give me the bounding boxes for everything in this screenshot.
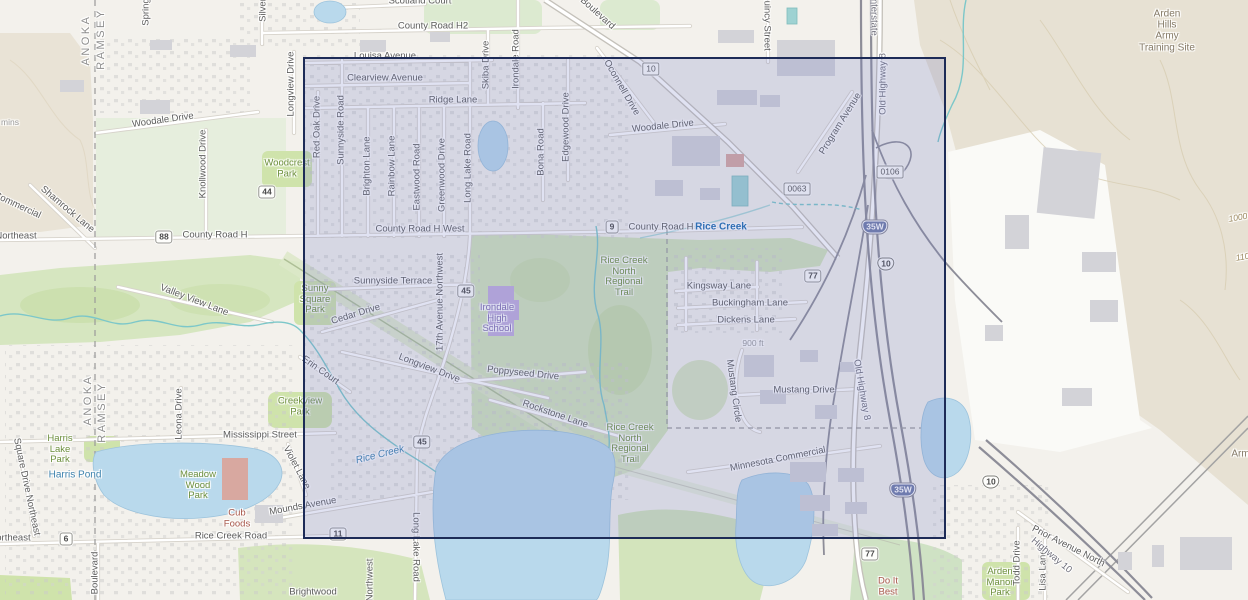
map-label-northeast: Northeast <box>0 534 31 545</box>
map-label-county-road-h2: County Road H2 <box>398 22 468 33</box>
map-label-commercial: Commercial <box>0 190 42 221</box>
map-label-meadow-wood-park: Meadow Wood Park <box>180 470 216 502</box>
map-label-harris-pond: Harris Pond <box>49 469 102 480</box>
map-label-lisa-lane: Lisa Lane <box>1039 549 1050 590</box>
map-label-highway-10: Highway 10 <box>1029 536 1074 576</box>
map-label-cub-foods: Cub Foods <box>224 508 250 529</box>
map-label-do-it-best: Do It Best <box>878 576 898 597</box>
map-label-shamrock-lane: Shamrock Lane <box>38 185 96 236</box>
map-label-mins: mins <box>1 118 19 128</box>
map-label-county-road-h: County Road H <box>183 231 248 242</box>
map-label-ramsey: RAMSEY <box>96 381 108 442</box>
map-label-leona-drive: Leona Drive <box>175 388 186 439</box>
map-label-valley-view-lane: Valley View Lane <box>158 283 229 319</box>
route-shield-10: 10 <box>982 476 999 489</box>
map-label-ramsey: RAMSEY <box>95 8 107 69</box>
map-label-todd-drive: Todd Drive <box>1013 540 1024 585</box>
map-label-scotland-court: Scotland Court <box>389 0 452 7</box>
map-canvas[interactable]: ANOKARAMSEYANOKARAMSEYminsWoodale DriveC… <box>0 0 1248 600</box>
map-label-brightwood: Brightwood <box>289 588 337 599</box>
map-label-prior-avenue-north: Prior Avenue North <box>1030 524 1106 570</box>
map-label-rice-creek-road: Rice Creek Road <box>195 532 267 543</box>
route-shield-77: 77 <box>861 548 878 561</box>
map-label-1000: 1000 <box>1228 212 1248 225</box>
map-label-mississippi-street: Mississippi Street <box>223 431 297 442</box>
selection-rectangle[interactable] <box>303 57 946 539</box>
map-label-1100: 1100 <box>1235 251 1248 264</box>
map-label-knollwood-drive: Knollwood Drive <box>199 130 210 199</box>
map-label-longview-drive: Longview Drive <box>287 52 298 117</box>
map-label-boulevard: Boulevard <box>91 552 102 595</box>
route-shield-44: 44 <box>258 186 275 199</box>
map-label-northwest: Northwest <box>366 559 377 600</box>
map-label-army: Army <box>1231 448 1248 459</box>
map-label-anoka: ANOKA <box>80 14 92 65</box>
map-label-interstate: Interstate <box>868 0 879 36</box>
map-label-silver: Silver <box>259 0 270 22</box>
map-label-boulevard: Boulevard <box>578 0 617 32</box>
map-label-harris-lake-park: Harris Lake Park <box>47 434 72 466</box>
map-label-quincy-street: Quincy Street <box>761 0 772 51</box>
map-label-woodale-drive: Woodale Drive <box>131 111 194 130</box>
route-shield-88: 88 <box>155 231 172 244</box>
map-label-square-drive-northeast: Square Drive Northeast <box>10 437 41 536</box>
map-label-arden-hills-army-training-site: Arden Hills Army Training Site <box>1139 9 1195 54</box>
map-label-spring: Spring <box>142 0 153 26</box>
map-label-northeast: Northeast <box>0 232 37 243</box>
map-label-arden-manor-park: Arden Manor Park <box>987 567 1014 599</box>
map-label-anoka: ANOKA <box>82 374 94 425</box>
route-shield-6: 6 <box>60 533 73 546</box>
